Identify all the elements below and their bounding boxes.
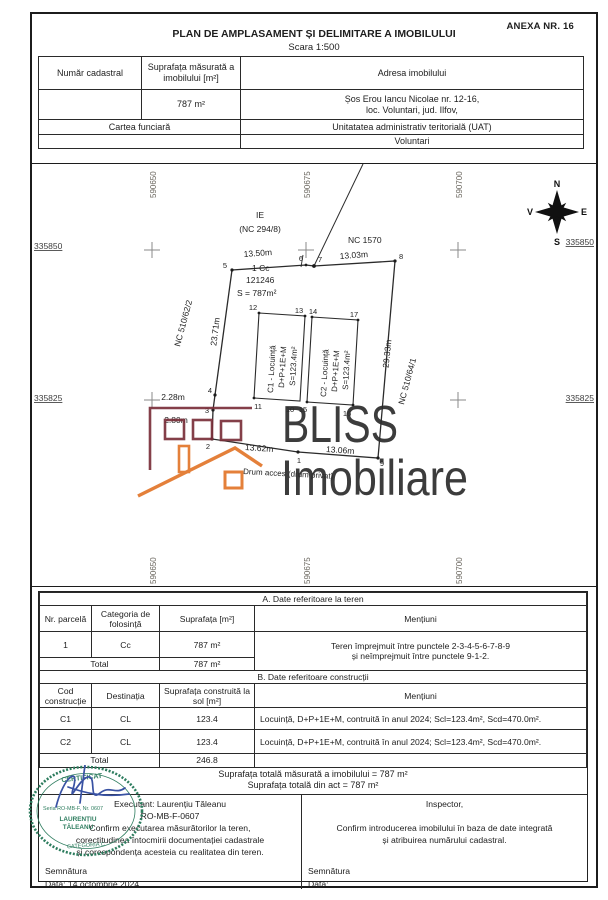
cartea-funciara-value: [39, 135, 241, 149]
c1-dest-cell: CL: [92, 708, 160, 730]
grid-x-label: 590675: [303, 557, 312, 584]
uat-value: Voluntari: [241, 135, 584, 149]
compass-s: S: [554, 237, 560, 247]
table-b-total-mentiuni-empty: [255, 754, 587, 767]
c2-sup-cell: 123.4: [160, 730, 255, 754]
stamp-name-line2: TĂLEANU: [63, 822, 94, 831]
stamp-categoria: CATEGORIA C: [67, 842, 105, 851]
zone-label-ie-nc: (NC 294/8): [239, 224, 281, 234]
grid-y-label: 335850: [566, 237, 595, 247]
dim-label: 23.71m: [208, 317, 221, 346]
point-label: 2: [206, 442, 210, 451]
table-a-total-value: 787 m²: [160, 658, 255, 671]
c2-cod-cell: C2: [40, 730, 92, 754]
c1-label-line3: S=123.4m²: [288, 346, 299, 386]
dim-label: 13.03m: [339, 249, 368, 261]
grid-x-label: 590700: [455, 171, 464, 198]
scale-label: Scara 1:500: [32, 42, 596, 53]
point-label: 12: [249, 303, 257, 312]
table-row: 1 Cc 787 m² Teren împrejmuit între punct…: [40, 632, 587, 658]
point-label: 8: [399, 252, 403, 261]
section-b-title: B. Date referitoare construcții: [40, 671, 587, 684]
inspector-cell: Inspector, Confirm introducerea imobilul…: [302, 795, 587, 889]
parcel-nr-cell: 1: [40, 632, 92, 658]
compass-e: E: [581, 207, 587, 217]
stamp-seria: Seria RO-MB-F, Nr. 0607: [43, 806, 103, 812]
zone-label-nc1570: NC 1570: [348, 235, 382, 245]
grid-x-label: 590700: [455, 557, 464, 584]
header-suprafata: Suprafața măsurată a imobilului [m²]: [142, 57, 241, 90]
grid-y-label: 335825: [566, 393, 595, 403]
c2-label-line3: S=123.4m²: [341, 350, 352, 390]
numar-cadastral-value: [39, 90, 142, 120]
c2-label-line2: D+P+1E+M: [330, 350, 341, 392]
c1-label-line1: C1 - Locuință: [266, 345, 278, 394]
mentiuni-line2: și neîmprejmuit între punctele 9-1-2.: [257, 651, 584, 661]
grid-x-labels: 590650 590675 590700 590650 590675 59070…: [149, 171, 464, 584]
point-label: 5: [223, 261, 227, 270]
grid-y-label: 335825: [34, 393, 63, 403]
inspector-data-label: Data:: [308, 878, 329, 890]
watermark-text-line1: BLISS: [282, 396, 398, 454]
grid-y-labels: 335850 335825 335850 335825: [34, 237, 594, 403]
table-b-header-mentiuni: Mențiuni: [255, 684, 587, 708]
table-a-header-categoria: Categoria de folosință: [92, 606, 160, 632]
grid-x-label: 590650: [149, 557, 158, 584]
page-title: PLAN DE AMPLASAMENT ȘI DELIMITARE A IMOB…: [32, 28, 596, 40]
parcel-sup-cell: 787 m²: [160, 632, 255, 658]
table-b-header-cod: Cod construcție: [40, 684, 92, 708]
grid-x-label: 590650: [149, 171, 158, 198]
table-a-header-suprafata: Suprafața [m²]: [160, 606, 255, 632]
suprafata-value: 787 m²: [142, 90, 241, 120]
logo-roof-outline: [138, 446, 262, 496]
point-label: 13: [295, 306, 303, 315]
adresa-line2: loc. Voluntari, jud. Ilfov,: [243, 105, 581, 116]
table-a-header-mentiuni: Mențiuni: [255, 606, 587, 632]
cartea-funciara-label: Cartea funciară: [39, 120, 241, 135]
table-row: C1 CL 123.4 Locuință, D+P+1E+M, contruit…: [40, 708, 587, 730]
plan-svg: 590650 590675 590700 590650 590675 59070…: [32, 164, 596, 586]
inspector-title: Inspector,: [306, 798, 583, 810]
teren-constructii-table: A. Date referitoare la teren Nr. parcelă…: [39, 592, 587, 768]
table-b-total-value: 246.8: [160, 754, 255, 767]
adresa-value: Șos Erou Iancu Nicolae nr. 12-16, loc. V…: [241, 90, 584, 120]
table-row: C2 CL 123.4 Locuință, D+P+1E+M, contruit…: [40, 730, 587, 754]
point-label: 11: [254, 402, 262, 411]
point-label: 17: [350, 310, 358, 319]
parcel-area: S = 787m²: [237, 288, 277, 298]
document-border: ANEXA NR. 16 PLAN DE AMPLASAMENT ȘI DELI…: [30, 12, 598, 888]
table-a-header-nr: Nr. parcelă: [40, 606, 92, 632]
inspector-confirm-line2: și atribuirea numărului cadastral.: [306, 834, 583, 846]
stamp-name-line1: LAURENȚIU: [60, 816, 97, 823]
c1-sup-cell: 123.4: [160, 708, 255, 730]
table-b-header-destinatia: Destinația: [92, 684, 160, 708]
zone-label-nc-right: NC 510/64/1: [396, 357, 418, 406]
point-label: 14: [309, 307, 317, 316]
adresa-line1: Șos Erou Iancu Nicolae nr. 12-16,: [243, 94, 581, 105]
table-b-header-suprafata: Suprafața construită la sol [m²]: [160, 684, 255, 708]
watermark-text-line2: Imobiliare: [281, 450, 468, 506]
section-a-title: A. Date referitoare la teren: [40, 593, 587, 606]
c2-mentiuni-cell: Locuință, D+P+1E+M, contruită în anul 20…: [255, 730, 587, 754]
zone-label-ie: IE: [256, 210, 264, 220]
watermark-logo: BLISS Imobiliare: [138, 396, 468, 506]
certification-stamp: CERTIFICAT Seria RO-MB-F, Nr. 0607 LAURE…: [26, 765, 150, 863]
grid-x-label: 590675: [303, 171, 312, 198]
parcel-code: 1 Cc: [252, 263, 270, 273]
header-numar-cadastral: Număr cadastral: [39, 57, 142, 90]
executant-semnatura-label: Semnătura: [45, 865, 87, 877]
site-plan-drawing: 590650 590675 590700 590650 590675 59070…: [32, 163, 596, 587]
c1-mentiuni-cell: Locuință, D+P+1E+M, contruită în anul 20…: [255, 708, 587, 730]
dim-label: 13.62m: [245, 442, 274, 454]
point-label: 7: [318, 255, 322, 264]
header-table: Număr cadastral Suprafața măsurată a imo…: [38, 56, 584, 149]
point-label: 6: [299, 254, 303, 263]
cadastral-document-page: { "doc": { "annex": "ANEXA NR. 16", "tit…: [0, 0, 608, 900]
inspector-semnatura-label: Semnătura: [308, 865, 350, 877]
parcel-mentiuni-cell: Teren împrejmuit între punctele 2-3-4-5-…: [255, 632, 587, 671]
c2-dest-cell: CL: [92, 730, 160, 754]
dim-label: 2.28m: [161, 392, 185, 402]
dim-label: 13.50m: [243, 247, 272, 259]
c1-cod-cell: C1: [40, 708, 92, 730]
compass-n: N: [554, 179, 561, 189]
grid-y-label: 335850: [34, 241, 63, 251]
zone-label-nc-left: NC 510/62/2: [172, 299, 194, 348]
mentiuni-line1: Teren împrejmuit între punctele 2-3-4-5-…: [257, 641, 584, 651]
parcel-cat-cell: Cc: [92, 632, 160, 658]
table-a-total-label: Total: [40, 658, 160, 671]
header-adresa: Adresa imobilului: [241, 57, 584, 90]
point-label: 4: [208, 386, 212, 395]
c1-label-line2: D+P+1E+M: [277, 346, 288, 388]
handwritten-signature: [56, 765, 129, 807]
c2-label-line1: C2 - Locuință: [319, 349, 331, 398]
parcel-number: 121246: [246, 275, 275, 285]
dim-label: 29.33m: [381, 339, 394, 368]
executant-data-label: Data: 14 octombrie 2024: [45, 878, 139, 890]
inspector-confirm-line1: Confirm introducerea imobilului în baza …: [306, 822, 583, 834]
uat-label: Unitatatea administrativ teritorială (UA…: [241, 120, 584, 135]
compass-v: V: [527, 207, 533, 217]
